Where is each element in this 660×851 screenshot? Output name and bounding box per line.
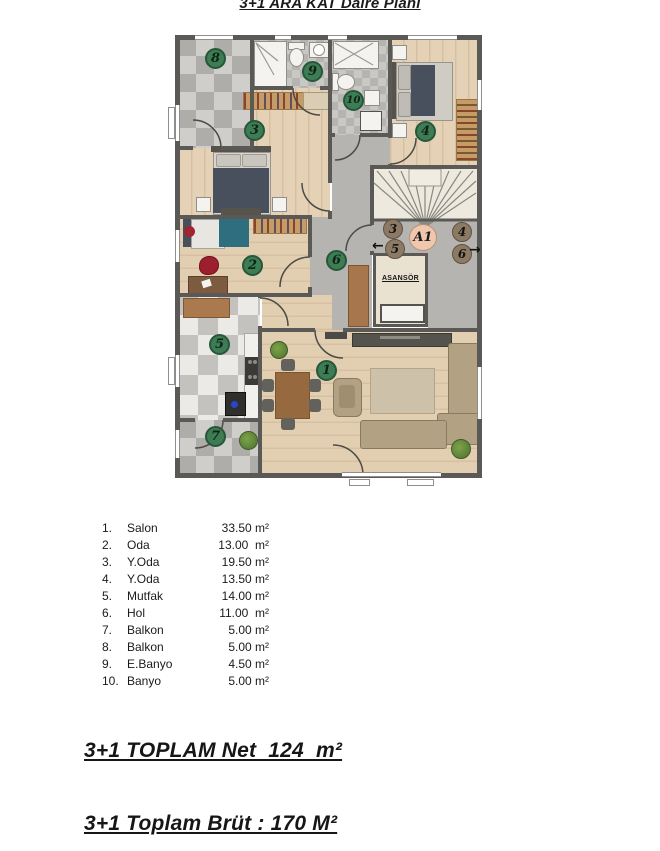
toilet-bowl xyxy=(337,74,355,90)
bed-pillow xyxy=(242,154,267,167)
room-list-row: 1.Salon33.50 m² xyxy=(102,519,269,536)
sofa-bottom xyxy=(360,420,447,449)
nightstand xyxy=(392,45,407,60)
room-no: 4. xyxy=(102,572,127,586)
room-no: 9. xyxy=(102,657,127,671)
stairwell-floor xyxy=(372,167,478,220)
bed-blanket xyxy=(411,65,435,116)
room-area: 13.50 m² xyxy=(203,572,269,586)
room-list-row: 8.Balkon5.00 m² xyxy=(102,638,269,655)
hall-floor-a xyxy=(332,135,390,167)
room-name: Salon xyxy=(127,521,203,535)
room-no: 2. xyxy=(102,538,127,552)
doormat xyxy=(325,332,347,339)
room-list-row: 9.E.Banyo4.50 m² xyxy=(102,655,269,672)
dining-chair xyxy=(309,399,321,412)
room-list-row: 2.Oda13.00 m² xyxy=(102,536,269,553)
room-no: 8. xyxy=(102,640,127,654)
room-no: 7. xyxy=(102,623,127,637)
common-corridor-floor xyxy=(428,253,478,330)
room-list-row: 7.Balkon5.00 m² xyxy=(102,621,269,638)
window xyxy=(175,230,180,262)
room-no: 3. xyxy=(102,555,127,569)
room-list-row: 3.Y.Oda19.50 m² xyxy=(102,553,269,570)
room-area: 5.00 m² xyxy=(203,674,269,688)
room-marker-1: 1 xyxy=(316,360,337,381)
washing-machine xyxy=(360,111,382,131)
room-area: 11.00 m² xyxy=(203,606,269,620)
beanbag xyxy=(199,256,219,275)
room-area: 5.00 m² xyxy=(203,640,269,654)
room-name: Oda xyxy=(127,538,203,552)
hall-cabinet xyxy=(348,265,369,327)
room-area: 14.00 m² xyxy=(203,589,269,603)
red-pillow xyxy=(184,226,195,237)
room-name: Mutfak xyxy=(127,589,203,603)
unit-circle-3: 3 xyxy=(383,219,403,239)
room-name: Y.Oda xyxy=(127,555,203,569)
plant xyxy=(270,341,288,359)
bed-bench xyxy=(221,208,261,216)
elevator-door xyxy=(380,304,425,323)
floor-plan: 1 2 3 4 5 6 7 8 9 10 3 5 A1 4 6 ← → ASAN… xyxy=(175,35,482,478)
room-list-row: 4.Y.Oda13.50 m² xyxy=(102,570,269,587)
bed-pillow xyxy=(398,92,411,117)
bed-pillow xyxy=(216,154,241,167)
window-sill xyxy=(407,479,434,486)
total-net-label: 3+1 TOPLAM Net 124 m² xyxy=(84,739,342,763)
bed-blanket xyxy=(213,168,269,213)
elevator-label: ASANSÖR xyxy=(373,275,428,282)
bed-pillow xyxy=(398,65,411,90)
window xyxy=(175,430,180,458)
window xyxy=(477,80,482,110)
window xyxy=(328,35,347,40)
room-marker-9: 9 xyxy=(302,61,323,82)
plant xyxy=(239,431,258,450)
page: 3+1 ARA KAT Daire Planı xyxy=(0,0,660,851)
window-sill xyxy=(168,107,175,139)
window xyxy=(408,35,457,40)
room-list-row: 10.Banyo5.00 m² xyxy=(102,672,269,689)
armchair-seat xyxy=(339,385,355,408)
dining-table xyxy=(275,372,310,419)
nightstand xyxy=(272,197,287,212)
wardrobe xyxy=(456,99,479,161)
dining-chair xyxy=(262,379,274,392)
dining-chair xyxy=(281,418,295,430)
room-marker-4: 4 xyxy=(415,121,436,142)
total-brut-label: 3+1 Toplam Brüt : 170 M² xyxy=(84,812,337,836)
tv-screen xyxy=(380,336,420,339)
sink-bowl xyxy=(313,44,325,56)
room-name: Y.Oda xyxy=(127,572,203,586)
plant xyxy=(451,439,471,459)
rug xyxy=(370,368,435,414)
room-list-row: 6.Hol11.00 m² xyxy=(102,604,269,621)
room-area: 19.50 m² xyxy=(203,555,269,569)
sink xyxy=(364,90,380,106)
room-no: 6. xyxy=(102,606,127,620)
sink-bowl xyxy=(231,401,238,408)
room-marker-7: 7 xyxy=(205,426,226,447)
window xyxy=(195,35,233,40)
wardrobe xyxy=(253,218,307,234)
room-list-row: 5.Mutfak14.00 m² xyxy=(102,587,269,604)
salon-entry-floor xyxy=(262,295,332,330)
room-area: 13.00 m² xyxy=(203,538,269,552)
room-marker-8: 8 xyxy=(205,48,226,69)
cabinet xyxy=(303,92,329,110)
room-name: Hol xyxy=(127,606,203,620)
balcony-window xyxy=(342,472,441,477)
room-area: 33.50 m² xyxy=(203,521,269,535)
room-area: 4.50 m² xyxy=(203,657,269,671)
dining-chair xyxy=(262,399,274,412)
room-name: Balkon xyxy=(127,623,203,637)
arrow-right-icon: → xyxy=(469,243,481,257)
shower xyxy=(333,41,379,69)
shower xyxy=(254,41,287,88)
kitchen-cabinet xyxy=(183,298,230,318)
window-sill xyxy=(168,357,175,385)
room-marker-3: 3 xyxy=(244,120,265,141)
dining-chair xyxy=(309,379,321,392)
bed-blanket-teal xyxy=(219,219,249,247)
room-area: 5.00 m² xyxy=(203,623,269,637)
unit-circle-4: 4 xyxy=(452,222,472,242)
stove-burner xyxy=(248,360,252,364)
window xyxy=(175,105,180,141)
room-no: 1. xyxy=(102,521,127,535)
window xyxy=(477,367,482,419)
room-name: Balkon xyxy=(127,640,203,654)
room-no: 5. xyxy=(102,589,127,603)
room-marker-6: 6 xyxy=(326,250,347,271)
room-list: 1.Salon33.50 m² 2.Oda13.00 m² 3.Y.Oda19.… xyxy=(102,519,269,689)
window xyxy=(275,35,291,40)
arrow-left-icon: ← xyxy=(372,239,384,253)
window xyxy=(175,355,180,387)
toilet-bowl xyxy=(289,48,304,67)
room-marker-5: 5 xyxy=(209,334,230,355)
page-title: 3+1 ARA KAT Daire Planı xyxy=(0,0,660,12)
room-marker-2: 2 xyxy=(242,255,263,276)
nightstand xyxy=(392,123,407,138)
window-sill xyxy=(349,479,370,486)
nightstand xyxy=(196,197,211,212)
room-no: 10. xyxy=(102,674,127,688)
room-marker-10: 10 xyxy=(343,90,364,111)
unit-circle-5: 5 xyxy=(385,239,405,259)
dining-chair xyxy=(281,359,295,371)
block-circle-a1: A1 xyxy=(409,224,437,251)
stove-burner xyxy=(253,360,257,364)
stove-burner xyxy=(253,375,257,379)
stove-burner xyxy=(248,375,252,379)
room-name: E.Banyo xyxy=(127,657,203,671)
room-name: Banyo xyxy=(127,674,203,688)
wardrobe xyxy=(243,92,305,110)
